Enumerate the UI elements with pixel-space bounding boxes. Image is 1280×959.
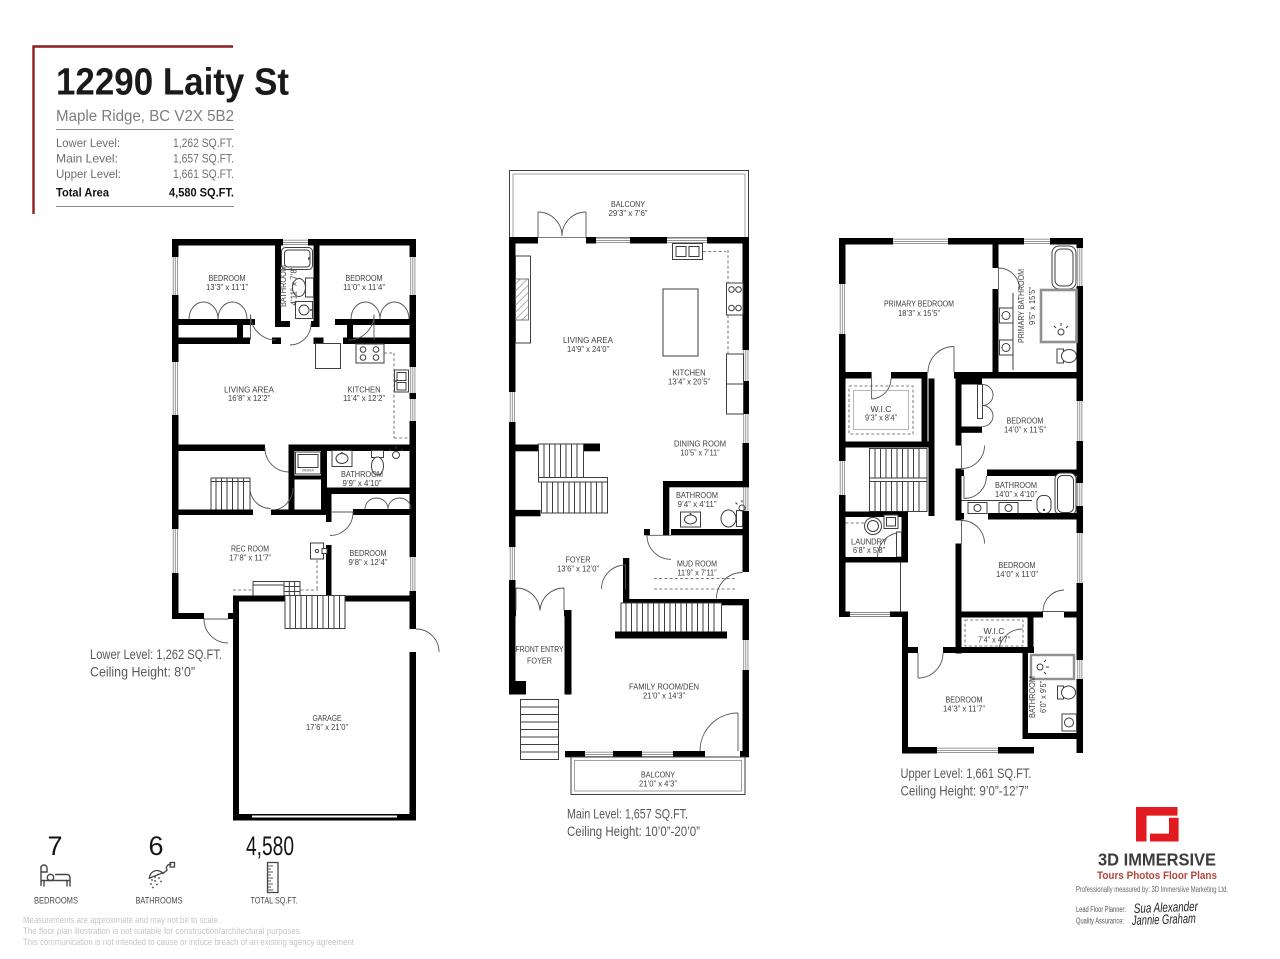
svg-text:PRIMARY BATHROOM: PRIMARY BATHROOM	[1017, 269, 1026, 343]
svg-text:Upper Level: 1,661 SQ.FT.: Upper Level: 1,661 SQ.FT.	[901, 765, 1032, 781]
svg-text:Lower Level:: Lower Level:	[56, 136, 120, 150]
svg-text:9’4” x 4’11”: 9’4” x 4’11”	[678, 499, 717, 509]
svg-text:9’8” x 12’4”: 9’8” x 12’4”	[349, 557, 388, 567]
svg-text:18’3” x 15’5”: 18’3” x 15’5”	[898, 308, 940, 318]
svg-text:13’3” x 11’1”: 13’3” x 11’1”	[206, 282, 248, 292]
svg-text:Jannie Graham: Jannie Graham	[1131, 911, 1196, 928]
svg-text:1,661 SQ.FT.: 1,661 SQ.FT.	[173, 167, 234, 181]
svg-text:4’11” x 7’8”: 4’11” x 7’8”	[290, 266, 299, 305]
svg-text:17’6” x 21’0”: 17’6” x 21’0”	[306, 722, 348, 732]
svg-text:FRONT ENTRY: FRONT ENTRY	[516, 645, 565, 654]
svg-text:PRIMARY BEDROOM: PRIMARY BEDROOM	[884, 298, 954, 308]
svg-text:6’8” x 5’8”: 6’8” x 5’8”	[853, 546, 885, 555]
svg-text:3D IMMERSIVE: 3D IMMERSIVE	[1098, 850, 1216, 870]
svg-text:The floor plan illustration is: The floor plan illustration is not suita…	[23, 926, 302, 937]
svg-text:21’0” x 4’3”: 21’0” x 4’3”	[639, 779, 677, 789]
svg-text:7: 7	[47, 831, 62, 861]
svg-text:Main Level:: Main Level:	[56, 152, 118, 166]
svg-text:BATHROOM: BATHROOM	[1028, 676, 1037, 718]
svg-text:4,580: 4,580	[246, 831, 294, 861]
svg-text:1,262 SQ.FT.: 1,262 SQ.FT.	[173, 136, 234, 150]
svg-text:12290 Laity St: 12290 Laity St	[56, 62, 289, 104]
svg-text:Ceiling Height: 8’0”: Ceiling Height: 8’0”	[90, 664, 195, 680]
svg-text:29’3” x 7’6”: 29’3” x 7’6”	[609, 208, 648, 218]
svg-text:11’4” x 12’2”: 11’4” x 12’2”	[343, 393, 385, 403]
svg-text:Main Level: 1,657 SQ.FT.: Main Level: 1,657 SQ.FT.	[567, 806, 688, 822]
svg-text:Measurements are approximate a: Measurements are approximate and may not…	[23, 915, 220, 926]
svg-text:This communication is not inte: This communication is not intended to ca…	[23, 937, 354, 948]
svg-text:7’4” x 4’7”: 7’4” x 4’7”	[978, 636, 1010, 645]
svg-text:Maple Ridge, BC V2X 5B2: Maple Ridge, BC V2X 5B2	[56, 108, 234, 125]
svg-text:BATHROOMS: BATHROOMS	[136, 896, 183, 906]
svg-text:14’0” x 11’0”: 14’0” x 11’0”	[996, 569, 1038, 579]
svg-text:BEDROOMS: BEDROOMS	[34, 896, 78, 906]
svg-text:14’0” x 11’5”: 14’0” x 11’5”	[1004, 425, 1046, 435]
svg-text:17’8” x 11’7”: 17’8” x 11’7”	[229, 552, 271, 562]
svg-text:Total Area: Total Area	[56, 186, 109, 200]
svg-text:WASHER: WASHER	[302, 469, 314, 473]
svg-text:Ceiling Height: 10’0”-20’0”: Ceiling Height: 10’0”-20’0”	[567, 823, 700, 839]
svg-text:14’3” x 11’7”: 14’3” x 11’7”	[943, 704, 985, 714]
svg-text:Upper Level:: Upper Level:	[56, 167, 121, 181]
svg-text:Lead Floor Planner:: Lead Floor Planner:	[1076, 905, 1126, 914]
svg-text:Quality Assurance:: Quality Assurance:	[1076, 917, 1124, 926]
svg-text:6: 6	[148, 831, 163, 861]
svg-text:Ceiling Height: 9’0”-12’7”: Ceiling Height: 9’0”-12’7”	[901, 783, 1029, 799]
svg-text:6’0” x 9’5”: 6’0” x 9’5”	[1039, 681, 1048, 713]
svg-text:11’0” x 11’4”: 11’0” x 11’4”	[343, 282, 385, 292]
svg-text:4,580 SQ.FT.: 4,580 SQ.FT.	[169, 186, 234, 200]
svg-text:9’3” x 8’4”: 9’3” x 8’4”	[865, 414, 897, 423]
svg-text:1,657 SQ.FT.: 1,657 SQ.FT.	[173, 152, 234, 166]
svg-text:13’4” x 20’5”: 13’4” x 20’5”	[668, 376, 710, 386]
svg-text:13’6” x 12’0”: 13’6” x 12’0”	[557, 564, 599, 574]
svg-text:Lower Level: 1,262 SQ.FT.: Lower Level: 1,262 SQ.FT.	[90, 646, 222, 662]
svg-text:14’0” x 4’10”: 14’0” x 4’10”	[995, 489, 1037, 499]
svg-text:16’8” x 12’2”: 16’8” x 12’2”	[228, 393, 270, 403]
svg-text:9’5” x 15’5”: 9’5” x 15’5”	[1028, 287, 1037, 325]
svg-text:14’9” x 24’0”: 14’9” x 24’0”	[567, 344, 609, 354]
svg-text:21’0” x 14’3”: 21’0” x 14’3”	[643, 691, 685, 701]
svg-text:Tours Photos Floor Plans: Tours Photos Floor Plans	[1097, 870, 1217, 882]
svg-text:10’5” x 7’11”: 10’5” x 7’11”	[681, 448, 720, 458]
svg-text:11’9” x 7’11”: 11’9” x 7’11”	[678, 568, 717, 578]
svg-text:TOTAL SQ.FT.: TOTAL SQ.FT.	[251, 896, 298, 906]
svg-text:FOYER: FOYER	[527, 657, 552, 666]
svg-text:BATHROOM: BATHROOM	[279, 265, 288, 307]
svg-text:9’9” x 4’10”: 9’9” x 4’10”	[343, 478, 382, 488]
svg-text:Professionally measured by: 3D: Professionally measured by: 3D Immersiiv…	[1076, 885, 1228, 894]
